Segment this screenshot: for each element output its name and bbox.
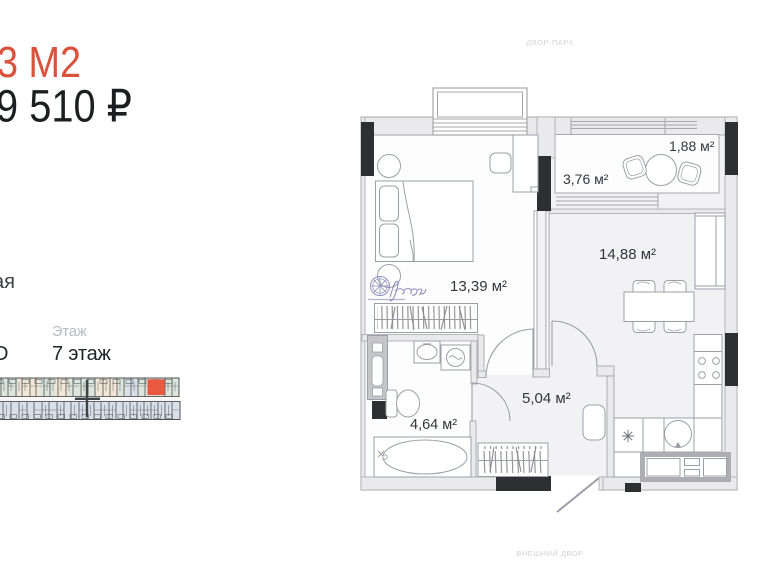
svg-text:ВНЕШНИЙ ДВОР: ВНЕШНИЙ ДВОР <box>516 549 583 558</box>
svg-text:4,64 м²: 4,64 м² <box>410 417 457 433</box>
svg-text:14,88 м²: 14,88 м² <box>599 246 656 263</box>
svg-text:9 510 ₽: 9 510 ₽ <box>0 81 132 132</box>
svg-text:ДВОР-ПАРК: ДВОР-ПАРК <box>526 38 574 47</box>
svg-text:7 этаж: 7 этаж <box>52 343 112 365</box>
svg-text:Этаж: Этаж <box>52 324 87 340</box>
svg-text:ная: ная <box>0 271 15 293</box>
svg-text:5,04 м²: 5,04 м² <box>522 390 571 407</box>
svg-text:3,76 м²: 3,76 м² <box>563 171 609 187</box>
svg-text:D: D <box>0 343 8 365</box>
svg-text:1,88 м²: 1,88 м² <box>669 138 715 154</box>
svg-text:13,39 м²: 13,39 м² <box>450 278 507 295</box>
